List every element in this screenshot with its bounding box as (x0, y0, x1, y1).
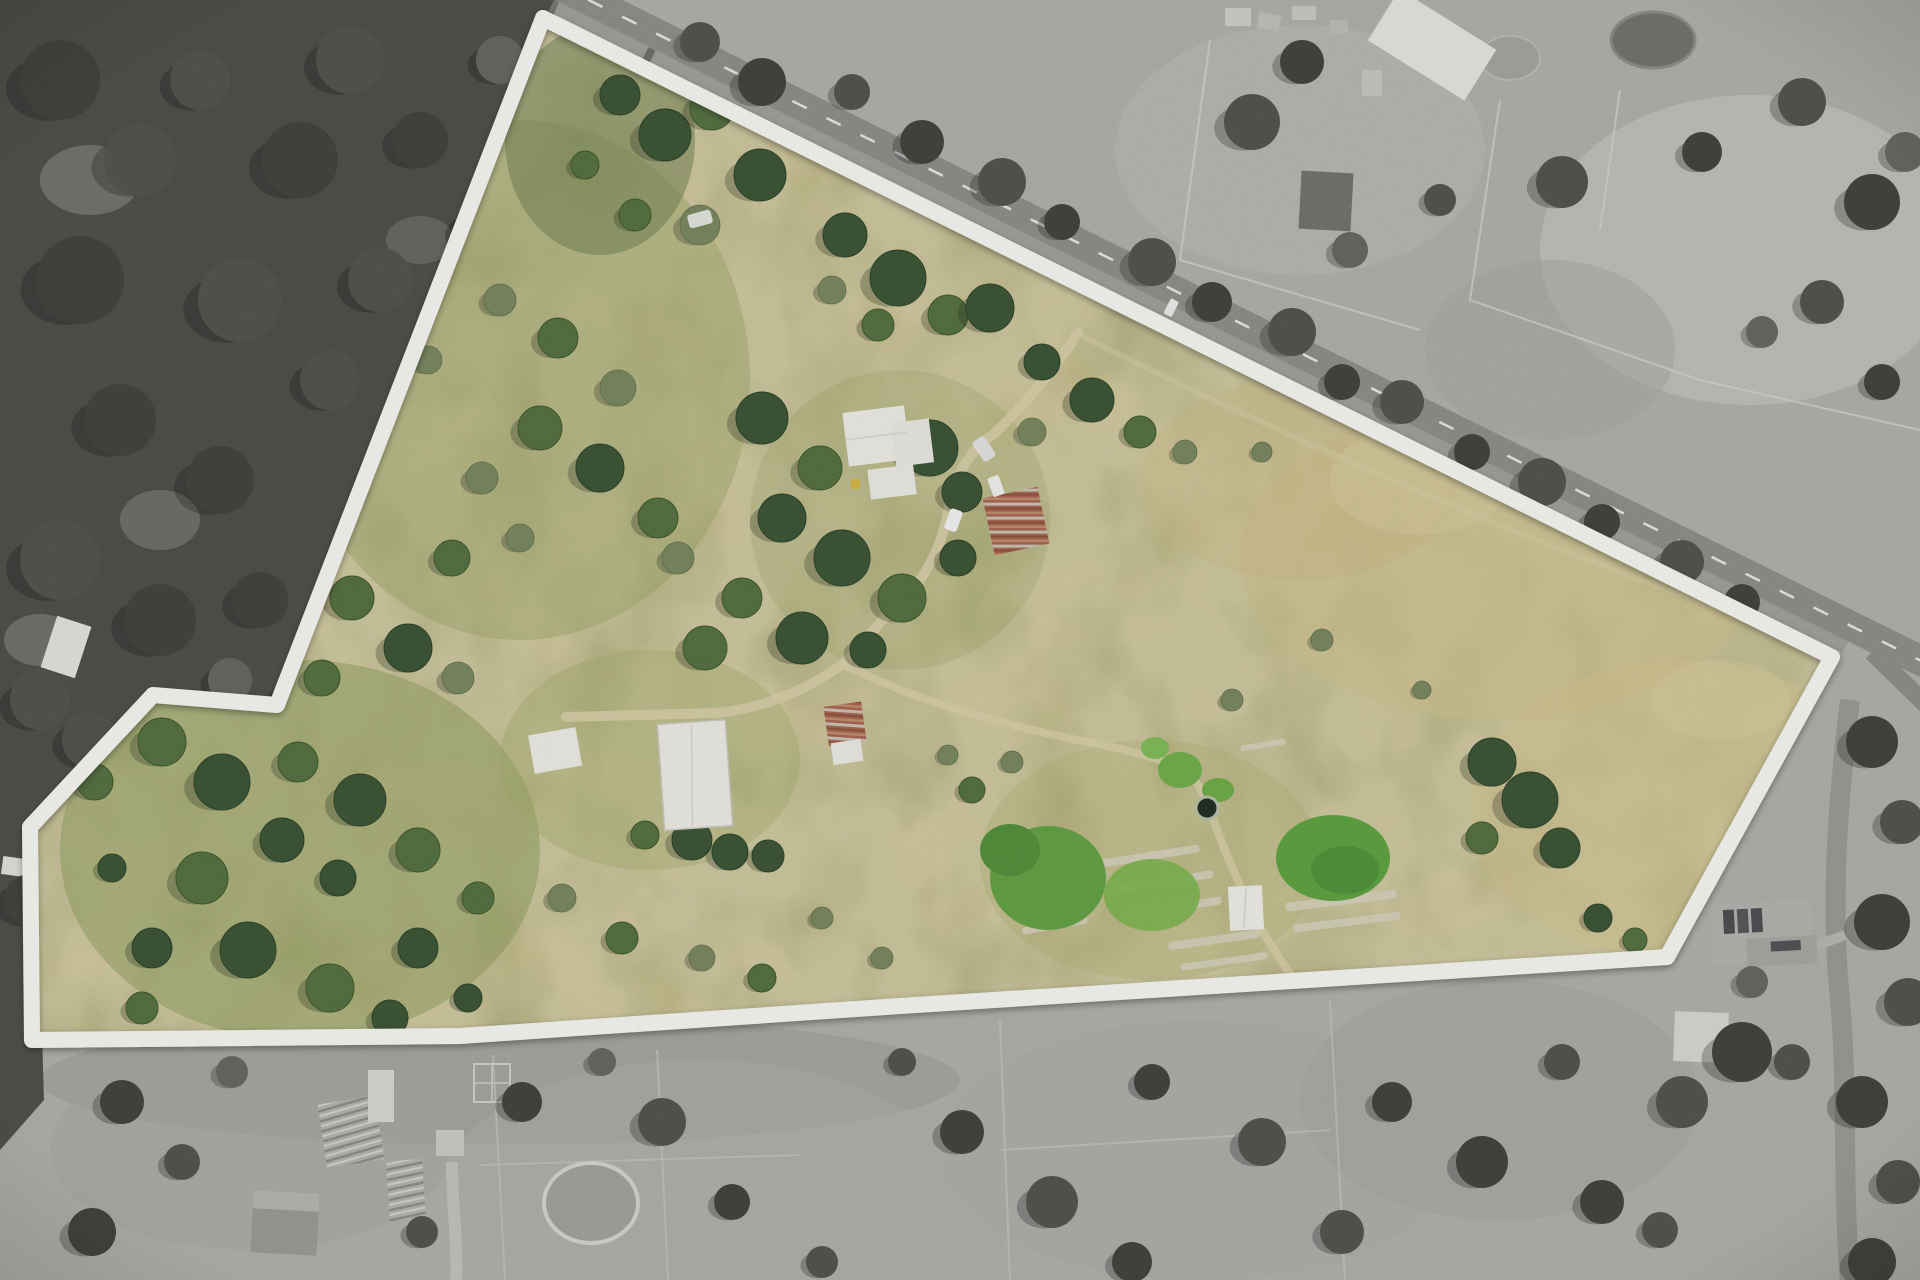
aerial-photo (0, 0, 1920, 1280)
vignette (0, 0, 1920, 1280)
aerial-photo-stage (0, 0, 1920, 1280)
